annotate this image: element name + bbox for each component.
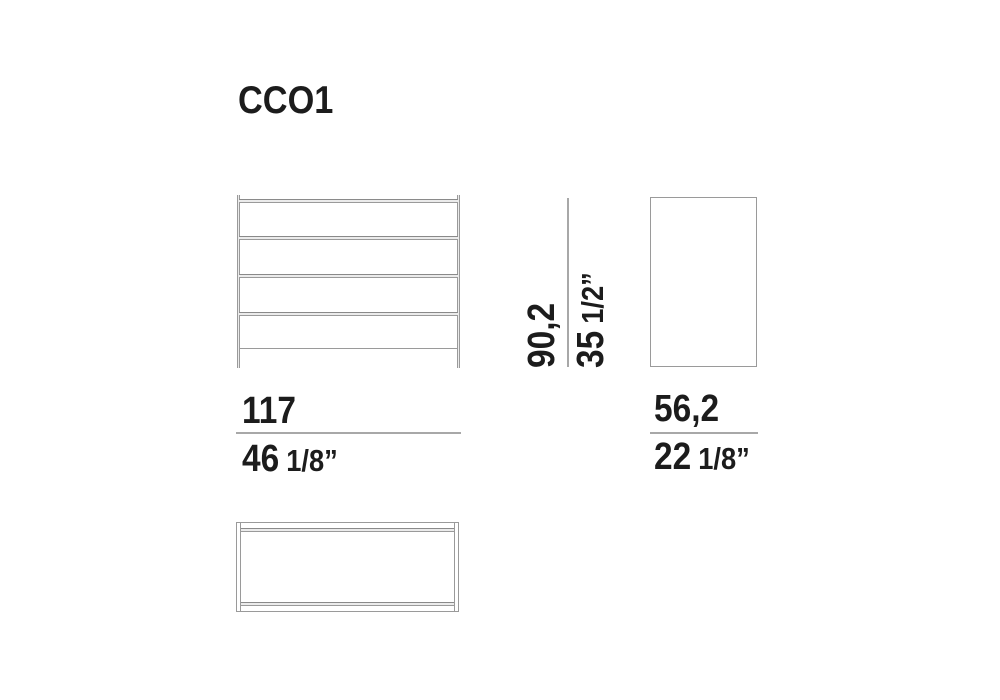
front-bottom-rail-line: [239, 348, 458, 349]
plan-right-post-line: [454, 523, 455, 611]
technical-drawing-sheet: CCO1 117 46 1/8” 90,2 35 1/2” 56,2 22 1/…: [0, 0, 1000, 700]
front-shelf-line-4: [239, 312, 458, 316]
front-right-post: [457, 195, 460, 368]
front-left-post: [237, 195, 240, 368]
front-shelf-line-1: [239, 199, 458, 203]
height-dim-inch-value: 35 1/2”: [572, 217, 610, 368]
height-dim-inch-whole: 35: [572, 331, 610, 368]
width-dim-inch-value: 46 1/8”: [242, 440, 338, 478]
plan-front-edge-line: [241, 602, 454, 606]
height-dim-cm-value: 90,2: [523, 217, 561, 368]
width-dim-divider-line: [236, 432, 461, 434]
depth-dim-inch-fraction: 1/8”: [698, 443, 750, 474]
plan-left-post-line: [240, 523, 241, 611]
height-dim-divider-line: [567, 198, 569, 367]
front-view: [237, 195, 460, 368]
front-shelf-line-2: [239, 236, 458, 240]
front-shelf-line-3: [239, 274, 458, 278]
width-dim-cm-value: 117: [242, 392, 296, 430]
plan-back-edge-line: [241, 528, 454, 532]
height-dim-inch-fraction: 1/2”: [574, 272, 612, 324]
width-dim-inch-fraction: 1/8”: [286, 445, 338, 476]
side-view: [650, 197, 757, 367]
depth-dim-inch-value: 22 1/8”: [654, 438, 750, 476]
depth-dim-inch-whole: 22: [654, 438, 691, 476]
product-code: CCO1: [238, 81, 333, 120]
depth-dim-cm-value: 56,2: [654, 390, 719, 428]
depth-dim-divider-line: [650, 432, 758, 434]
plan-view: [236, 522, 459, 612]
width-dim-inch-whole: 46: [242, 440, 279, 478]
